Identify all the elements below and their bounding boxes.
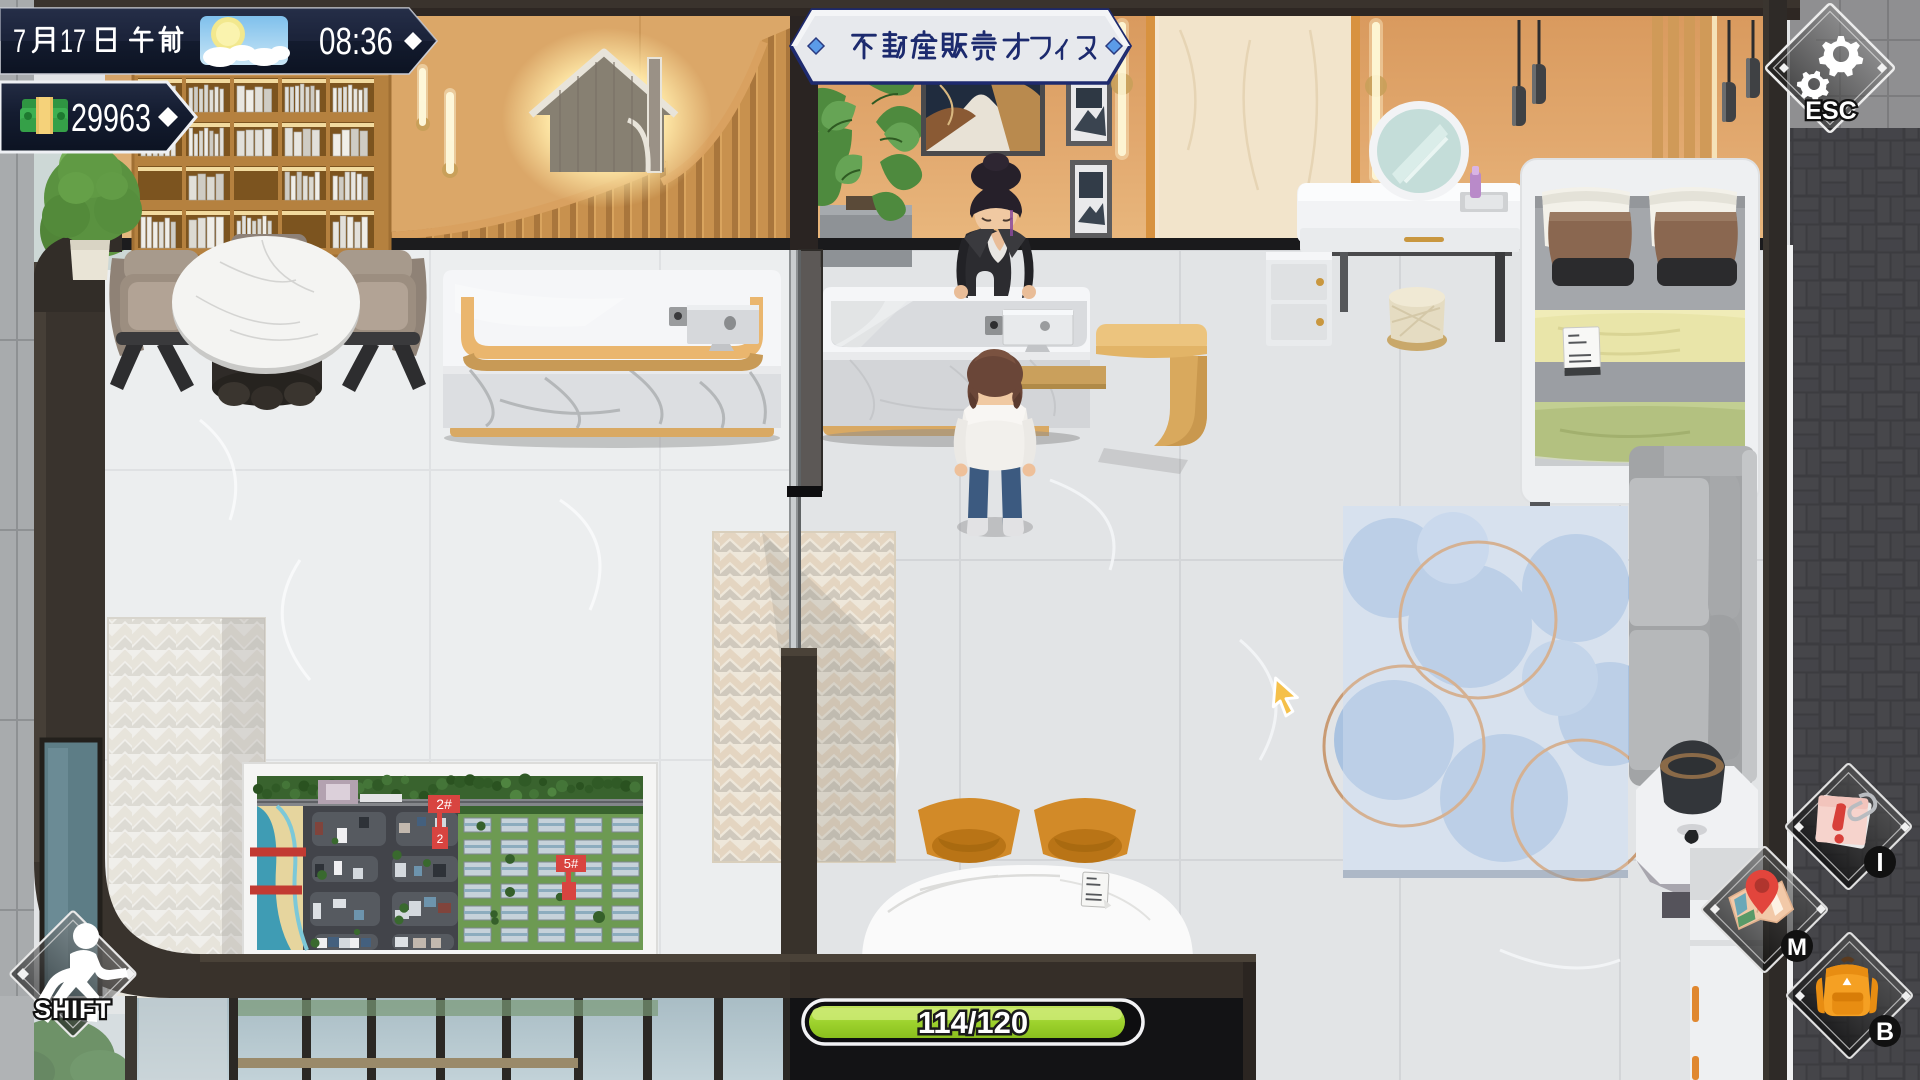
svg-text:08:36: 08:36 [319,21,393,63]
svg-text:B: B [1876,1018,1894,1046]
svg-text:SHIFT: SHIFT [34,996,111,1024]
svg-text:17: 17 [60,23,86,59]
svg-text:M: M [1787,934,1807,961]
svg-text:114/120: 114/120 [918,1005,1028,1040]
svg-text:5#: 5# [564,856,579,871]
svg-text:2#: 2# [436,796,452,812]
svg-text:I: I [1876,847,1883,877]
svg-text:29963: 29963 [71,97,151,140]
svg-text:ESC: ESC [1805,97,1856,125]
svg-text:7: 7 [13,23,26,59]
svg-text:2: 2 [437,832,444,846]
